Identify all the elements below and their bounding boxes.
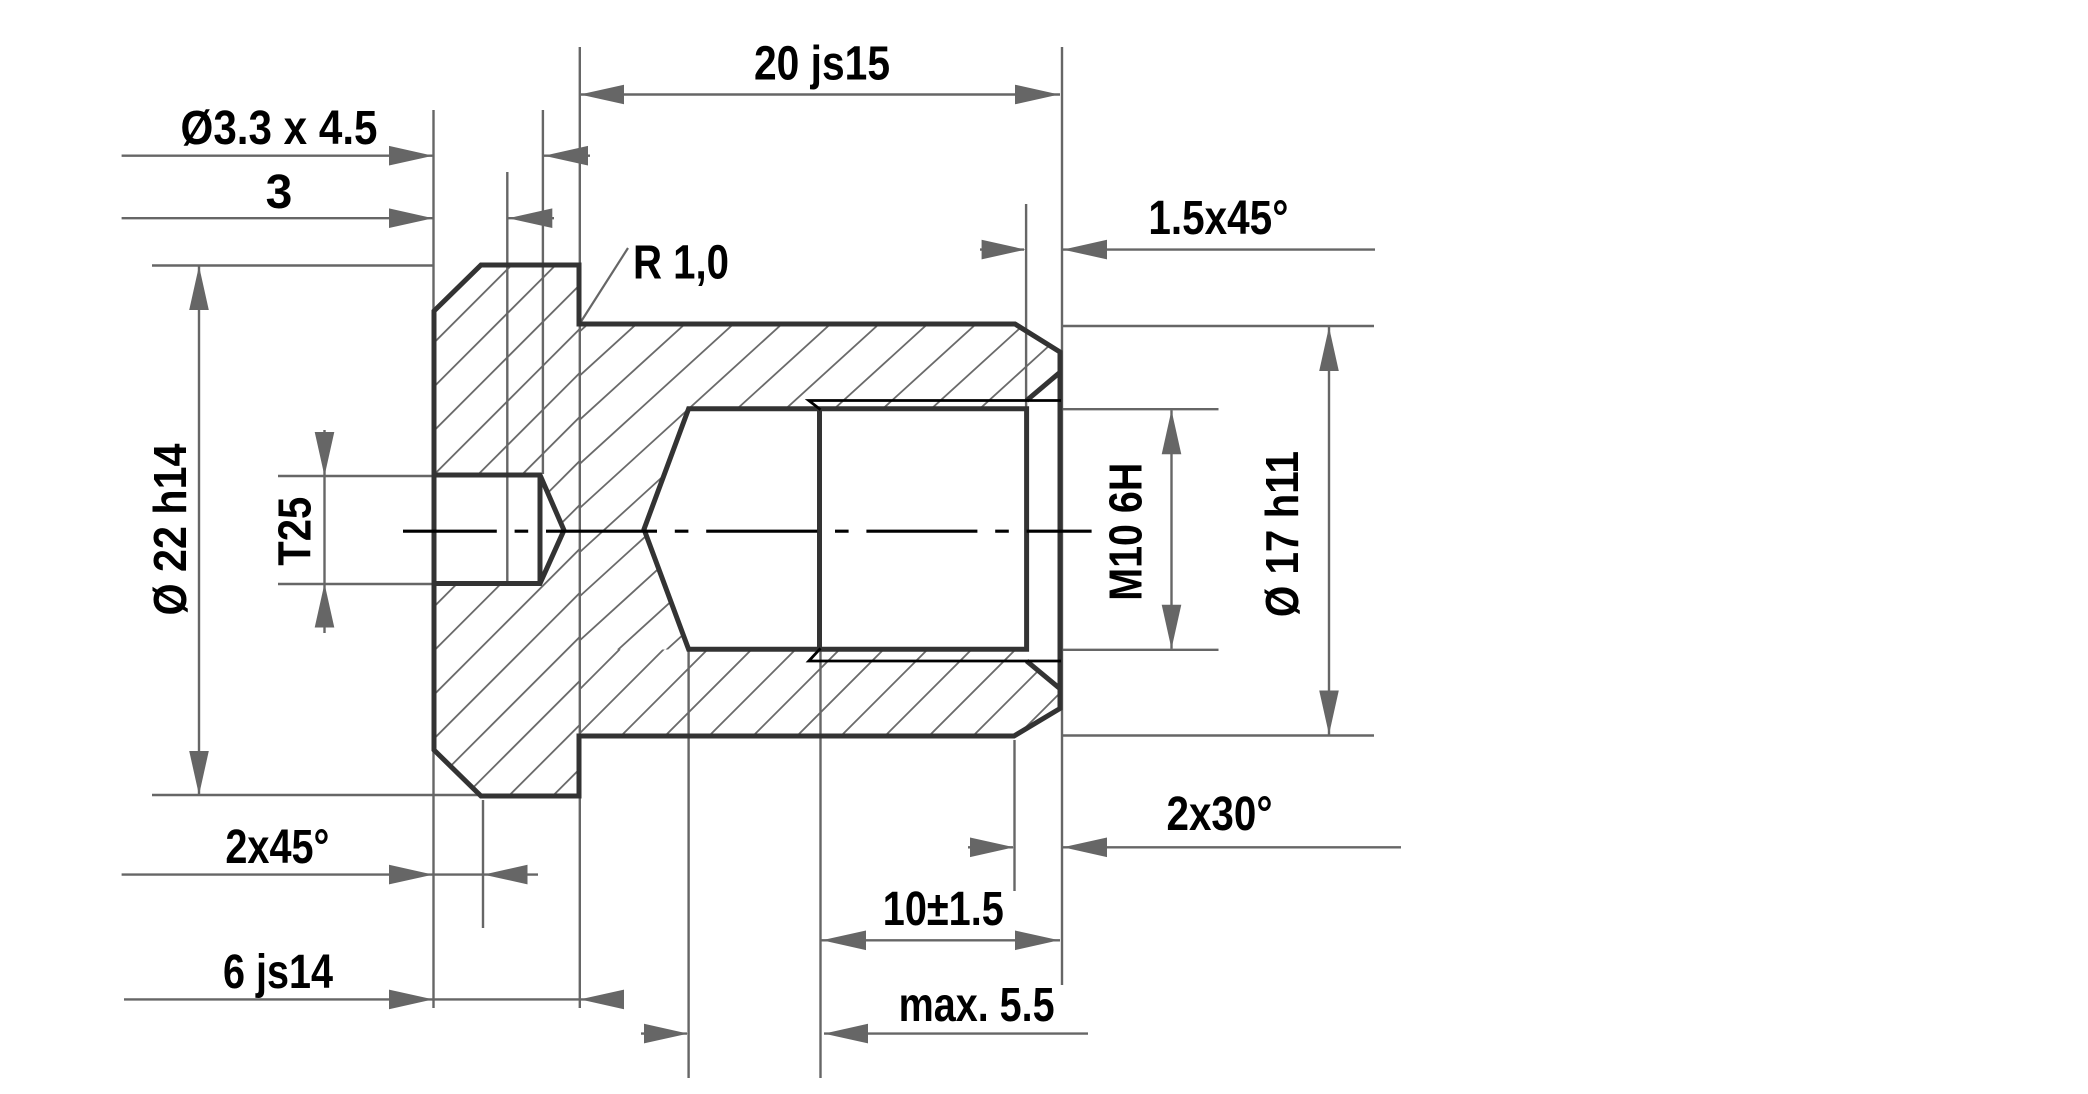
svg-text:Ø3.3 x 4.5: Ø3.3 x 4.5 [181,102,378,155]
svg-text:Ø 17 h11: Ø 17 h11 [1256,451,1308,617]
svg-text:20 js15: 20 js15 [754,38,890,91]
svg-text:3: 3 [266,166,293,219]
svg-text:M10 6H: M10 6H [1099,463,1151,601]
svg-text:R 1,0: R 1,0 [633,237,729,290]
svg-text:10±1.5: 10±1.5 [883,883,1004,936]
svg-text:6 js14: 6 js14 [223,946,333,999]
svg-text:T25: T25 [269,497,321,566]
svg-text:Ø 22 h14: Ø 22 h14 [144,443,196,615]
svg-text:2x30°: 2x30° [1167,788,1273,841]
svg-text:1.5x45°: 1.5x45° [1148,192,1288,245]
svg-text:max. 5.5: max. 5.5 [899,979,1055,1032]
svg-text:2x45°: 2x45° [225,821,329,874]
